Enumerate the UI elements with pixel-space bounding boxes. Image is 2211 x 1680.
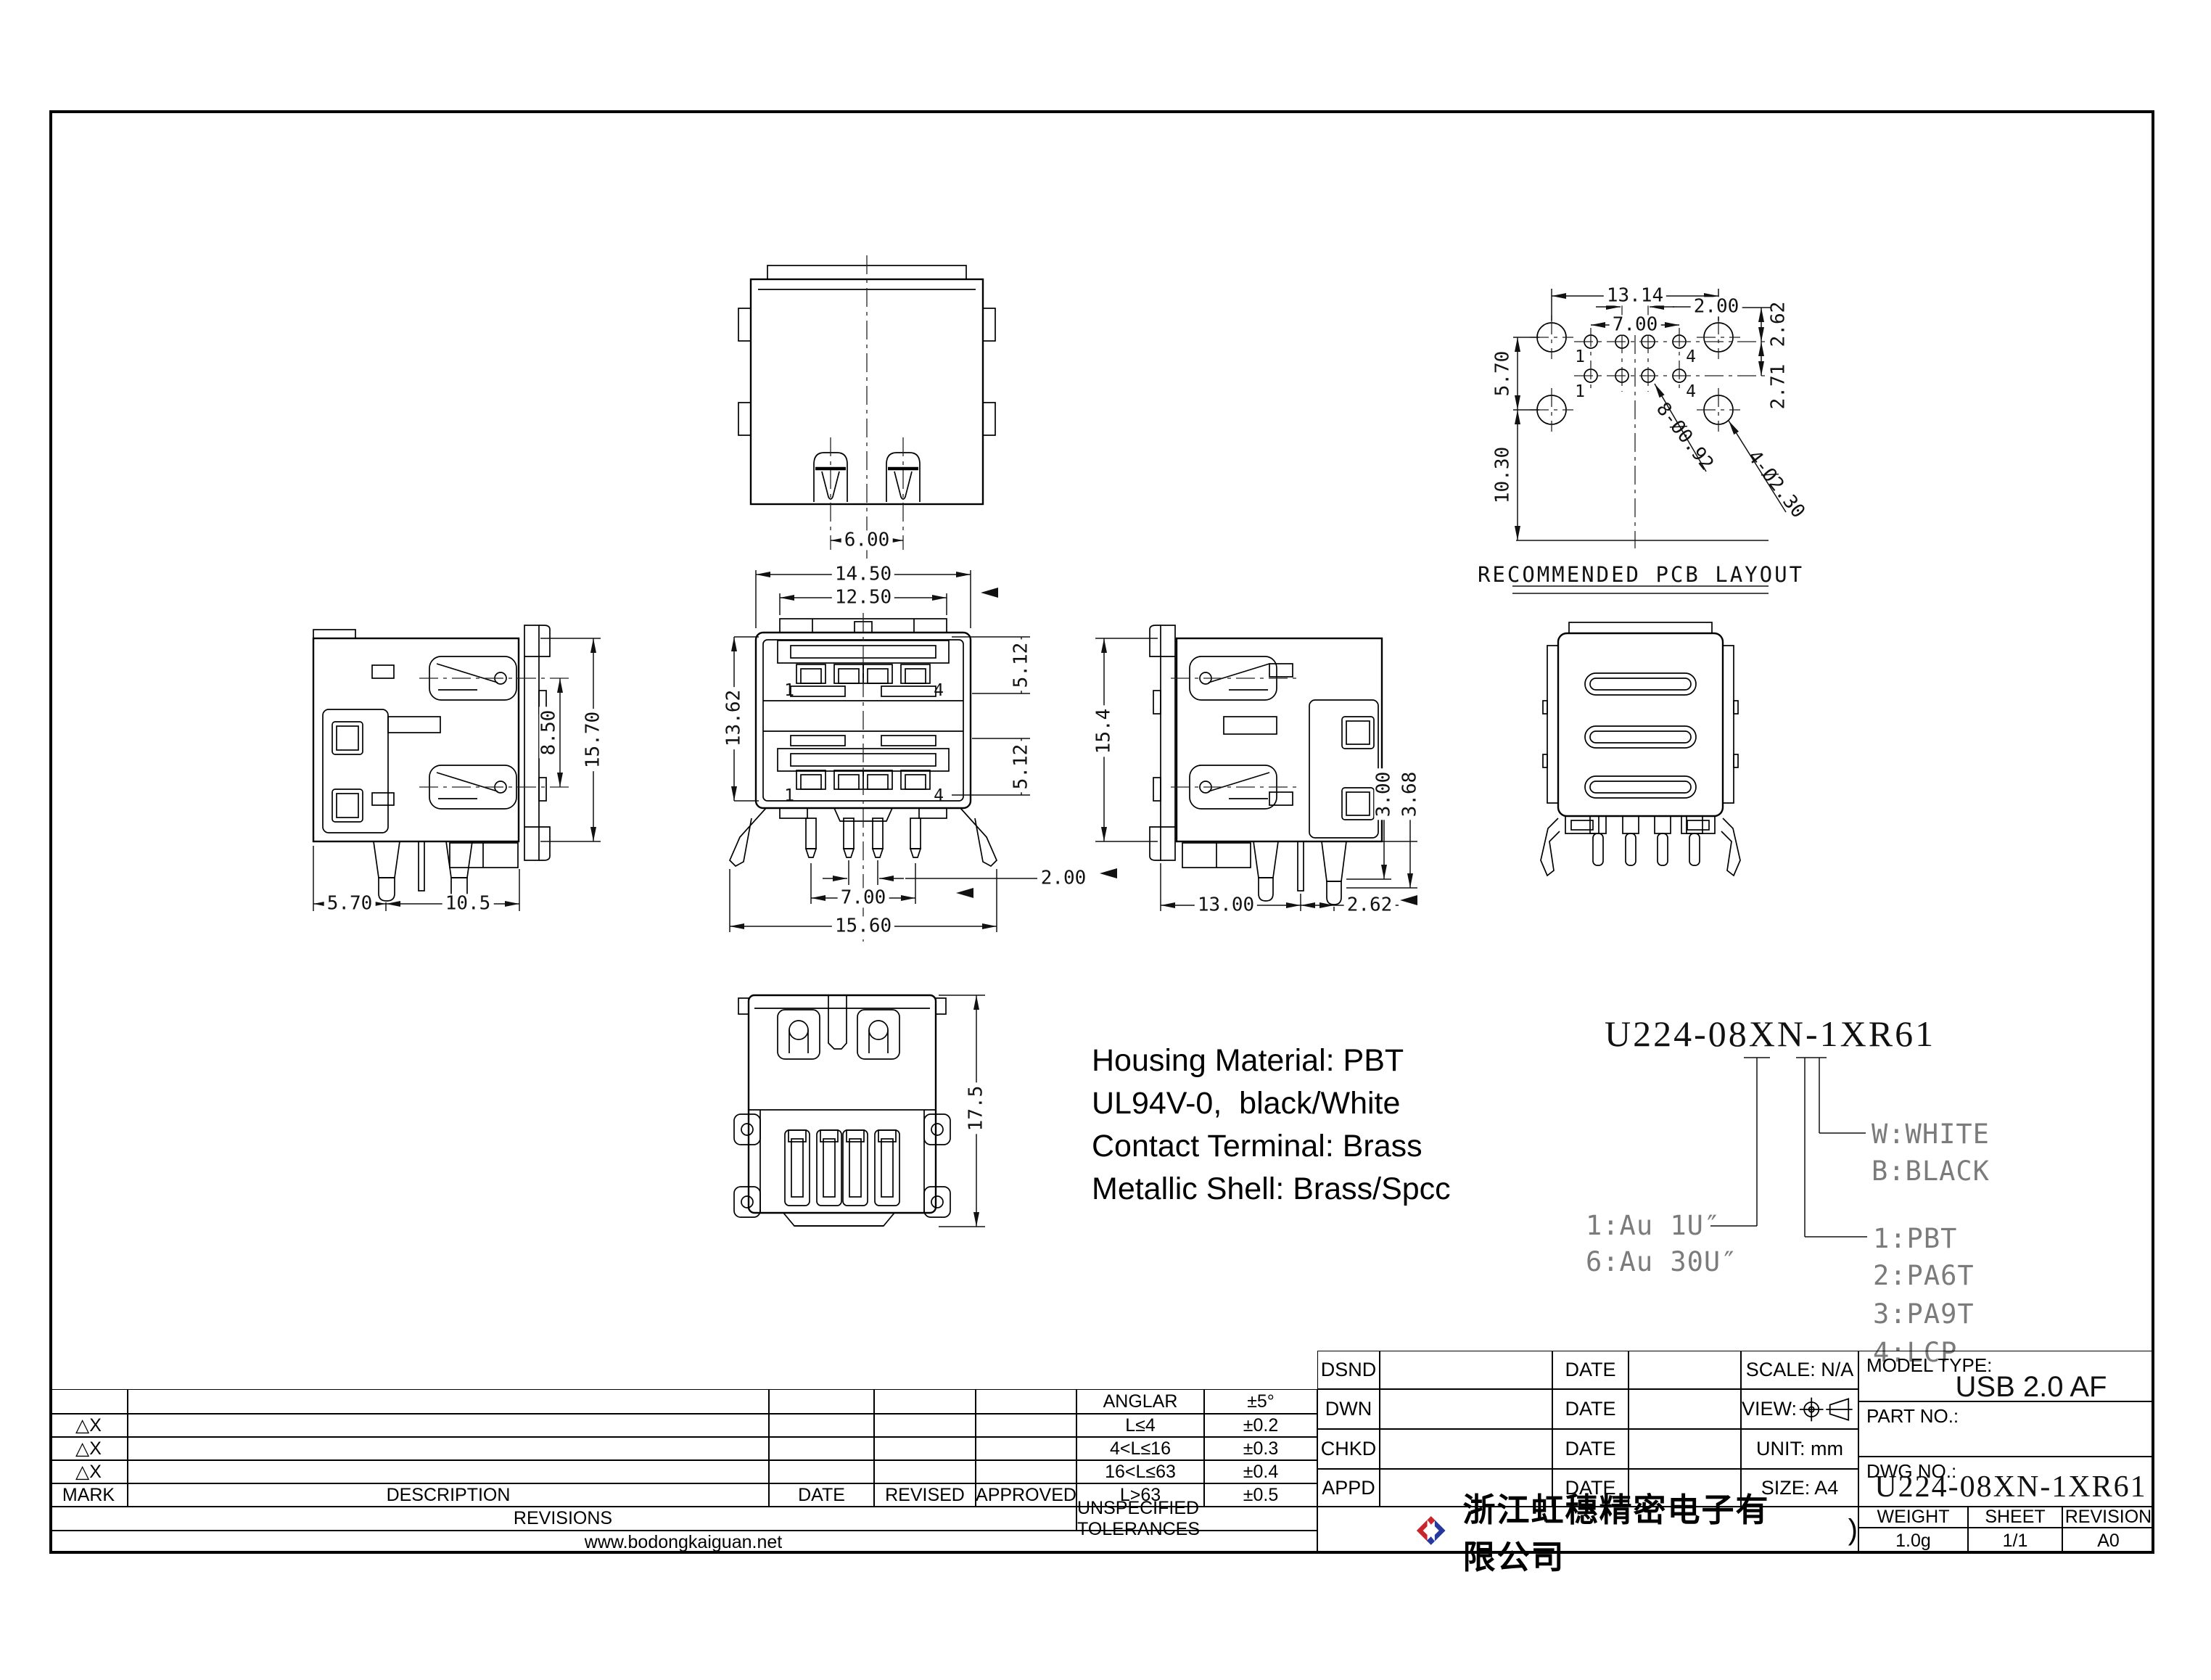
dsnd-date-value bbox=[1629, 1351, 1741, 1389]
dim-right-15-4: 15.4 bbox=[1094, 706, 1113, 757]
plating-option-1: 1:Au 1U″ bbox=[1586, 1210, 1721, 1241]
note-housing-material: Housing Material: PBT bbox=[1092, 1043, 1404, 1079]
cell-approved-r4 bbox=[976, 1460, 1076, 1483]
unit-field: UNIT: mm bbox=[1741, 1429, 1858, 1469]
dim-pcb-2-71: 2.71 bbox=[1769, 364, 1788, 410]
pcb-pin4-row2: 4 bbox=[1686, 383, 1696, 400]
date-header: DATE bbox=[769, 1483, 874, 1507]
view-label: VIEW: bbox=[1742, 1398, 1797, 1420]
dim-pcb-5-70: 5.70 bbox=[1493, 351, 1512, 397]
cell-revised-r1 bbox=[874, 1389, 976, 1414]
chkd-date-label: DATE bbox=[1552, 1429, 1629, 1469]
dwn-label: DWN bbox=[1317, 1389, 1380, 1429]
front-pin1-upper: 1 bbox=[784, 682, 794, 699]
dim-front-5-12-upper: 5.12 bbox=[1011, 640, 1031, 691]
dim-front-15-60: 15.60 bbox=[832, 916, 894, 936]
color-option-w: W:WHITE bbox=[1872, 1119, 1990, 1150]
front-pin1-lower: 1 bbox=[784, 787, 794, 804]
material-option-3: 3:PA9T bbox=[1873, 1298, 1975, 1330]
dim-left-5-70: 5.70 bbox=[324, 894, 376, 913]
dim-bottom-17-5: 17.5 bbox=[966, 1083, 986, 1135]
view-side-right bbox=[1095, 625, 1417, 911]
dim-front-12-50: 12.50 bbox=[832, 588, 894, 607]
cell-date-r4 bbox=[769, 1460, 874, 1483]
revised-header: REVISED bbox=[874, 1483, 976, 1507]
dim-front-2-00: 2.00 bbox=[1038, 868, 1090, 888]
model-type-value: USB 2.0 AF bbox=[1956, 1372, 2107, 1402]
dim-left-10-5: 10.5 bbox=[442, 894, 494, 913]
tolerance-value-l63: ±0.4 bbox=[1204, 1460, 1317, 1483]
mark-header: MARK bbox=[49, 1483, 128, 1507]
tolerance-range-l63: 16<L≤63 bbox=[1076, 1460, 1204, 1483]
dwn-value bbox=[1380, 1389, 1552, 1429]
view-side-left bbox=[313, 625, 601, 911]
dwn-date-value bbox=[1629, 1389, 1741, 1429]
weight-value: 1.0g bbox=[1858, 1528, 1968, 1554]
drawing-sheet: 6.00 13.14 7.00 2.00 2.62 5.70 2.71 10.3… bbox=[0, 0, 2211, 1680]
tolerance-range-l16: 4<L≤16 bbox=[1076, 1437, 1204, 1460]
dim-pcb-7-00: 7.00 bbox=[1610, 315, 1661, 334]
dwg-no-value: U224-08XN-1XR61 bbox=[1874, 1470, 2146, 1504]
dim-right-2-62: 2.62 bbox=[1344, 895, 1396, 915]
cell-revised-r3 bbox=[874, 1437, 976, 1460]
company-cell: 浙江虹穗精密电子有限公司 ) bbox=[1317, 1507, 1858, 1554]
cell-desc-r3 bbox=[128, 1437, 769, 1460]
cell-desc-r1 bbox=[128, 1389, 769, 1414]
tolerance-value-l4: ±0.2 bbox=[1204, 1414, 1317, 1437]
chkd-label: CHKD bbox=[1317, 1429, 1380, 1469]
chkd-value bbox=[1380, 1429, 1552, 1469]
part-no-cell: PART NO.: bbox=[1858, 1401, 2154, 1457]
revision-value: A0 bbox=[2062, 1528, 2154, 1554]
view-field: VIEW: bbox=[1741, 1389, 1858, 1429]
mark-symbol-r2: △X bbox=[49, 1414, 128, 1437]
color-option-b: B:BLACK bbox=[1872, 1156, 1990, 1187]
dim-pcb-10-30: 10.30 bbox=[1493, 447, 1512, 503]
mark-symbol-r3: △X bbox=[49, 1437, 128, 1460]
cell-date-r3 bbox=[769, 1437, 874, 1460]
dim-pcb-2-62: 2.62 bbox=[1769, 302, 1788, 347]
tolerance-value-l16: ±0.3 bbox=[1204, 1437, 1317, 1460]
revision-header: REVISION bbox=[2062, 1507, 2154, 1528]
cell-mark-r1 bbox=[49, 1389, 128, 1414]
front-pin4-lower: 4 bbox=[934, 787, 944, 804]
material-option-2: 2:PA6T bbox=[1873, 1260, 1975, 1291]
dwn-date-label: DATE bbox=[1552, 1389, 1629, 1429]
view-rear bbox=[1541, 622, 1740, 876]
description-header: DESCRIPTION bbox=[128, 1483, 769, 1507]
dim-pcb-13-14: 13.14 bbox=[1604, 286, 1666, 305]
note-ul94: UL94V-0, black/White bbox=[1092, 1086, 1400, 1121]
dim-right-3-00: 3.00 bbox=[1374, 769, 1393, 820]
company-logo bbox=[1412, 1510, 1449, 1552]
company-mark: ) bbox=[1848, 1514, 1858, 1547]
scale-field: SCALE: N/A bbox=[1741, 1351, 1858, 1389]
mark-symbol-r4: △X bbox=[49, 1460, 128, 1483]
cell-date-r1 bbox=[769, 1389, 874, 1414]
dim-top-width: 6.00 bbox=[841, 530, 893, 550]
note-contact-terminal: Contact Terminal: Brass bbox=[1092, 1129, 1422, 1164]
view-bottom bbox=[734, 995, 985, 1227]
chkd-date-value bbox=[1629, 1429, 1741, 1469]
note-metallic-shell: Metallic Shell: Brass/Spcc bbox=[1092, 1172, 1451, 1207]
dsnd-date-label: DATE bbox=[1552, 1351, 1629, 1389]
tolerance-range-anglar: ANGLAR bbox=[1076, 1389, 1204, 1414]
tolerance-value-anglar: ±5° bbox=[1204, 1389, 1317, 1414]
plating-option-6: 6:Au 30U″ bbox=[1586, 1246, 1737, 1277]
part-number: U224-08XN-1XR61 bbox=[1605, 1013, 1935, 1055]
dim-left-15-70: 15.70 bbox=[583, 709, 603, 771]
weight-header: WEIGHT bbox=[1858, 1507, 1968, 1528]
sheet-value: 1/1 bbox=[1968, 1528, 2062, 1554]
dim-right-13-00: 13.00 bbox=[1195, 895, 1257, 915]
third-angle-projection-icon bbox=[1798, 1393, 1858, 1425]
pcb-pin1-row1: 1 bbox=[1575, 348, 1585, 366]
part-no-label: PART NO.: bbox=[1866, 1405, 1959, 1428]
cell-approved-r2 bbox=[976, 1414, 1076, 1437]
cell-approved-r1 bbox=[976, 1389, 1076, 1414]
unspecified-tolerances-label: UNSPECIFIED TOLERANCES bbox=[1076, 1507, 1317, 1531]
dsnd-label: DSND bbox=[1317, 1351, 1380, 1389]
material-option-1: 1:PBT bbox=[1873, 1223, 1957, 1254]
revisions-label: REVISIONS bbox=[49, 1507, 1076, 1531]
dim-right-3-68: 3.68 bbox=[1400, 769, 1420, 820]
cell-desc-r2 bbox=[128, 1414, 769, 1437]
dim-front-7-00: 7.00 bbox=[838, 888, 889, 907]
dim-pcb-2-00: 2.00 bbox=[1691, 297, 1742, 316]
website-link: www.bodongkaiguan.net bbox=[49, 1531, 1317, 1554]
cell-revised-r2 bbox=[874, 1414, 976, 1437]
dim-front-14-50: 14.50 bbox=[832, 564, 894, 584]
dim-front-13-62: 13.62 bbox=[724, 687, 744, 749]
company-name: 浙江虹穗精密电子有限公司 bbox=[1462, 1483, 1791, 1578]
approved-header: APPROVED bbox=[976, 1483, 1076, 1507]
cell-approved-r3 bbox=[976, 1437, 1076, 1460]
front-pin4-upper: 4 bbox=[934, 682, 944, 699]
dim-left-8-50: 8.50 bbox=[539, 707, 559, 759]
cell-revised-r4 bbox=[874, 1460, 976, 1483]
pcb-caption: RECOMMENDED PCB LAYOUT bbox=[1478, 564, 1804, 585]
appd-label: APPD bbox=[1317, 1469, 1380, 1507]
tolerance-range-l4: L≤4 bbox=[1076, 1414, 1204, 1437]
cell-desc-r4 bbox=[128, 1460, 769, 1483]
pcb-pin4-row1: 4 bbox=[1686, 348, 1696, 366]
dim-front-5-12-lower: 5.12 bbox=[1011, 741, 1031, 793]
dsnd-value bbox=[1380, 1351, 1552, 1389]
sheet-header: SHEET bbox=[1968, 1507, 2062, 1528]
part-tree-lines bbox=[1710, 1058, 1867, 1237]
pcb-pin1-row2: 1 bbox=[1575, 383, 1585, 400]
view-top bbox=[738, 255, 995, 559]
cell-date-r2 bbox=[769, 1414, 874, 1437]
